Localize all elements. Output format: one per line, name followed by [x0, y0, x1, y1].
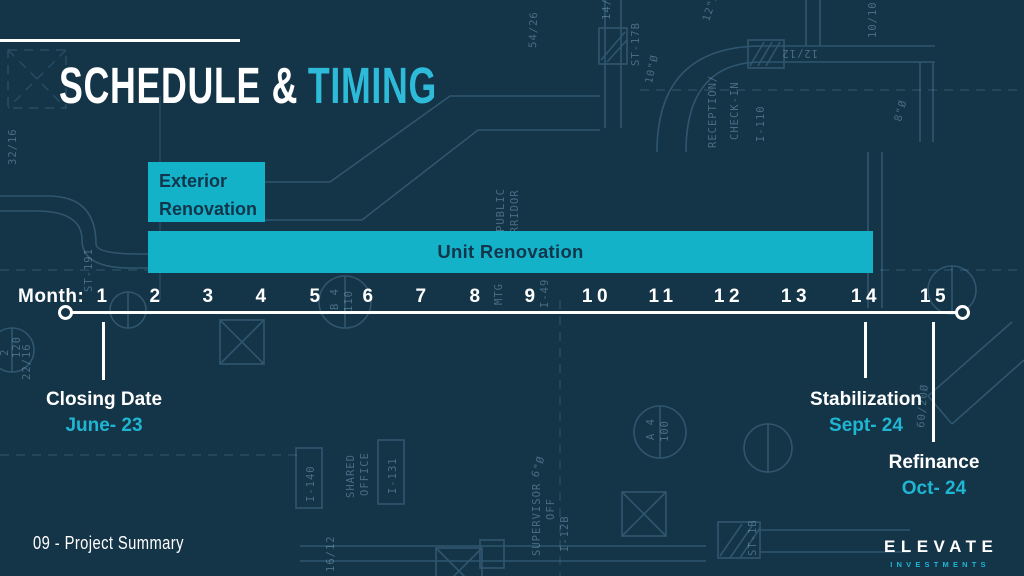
blueprint-label: 110: [343, 290, 355, 312]
month-label-13: 13: [781, 286, 811, 308]
blueprint-label: ST-17B: [630, 22, 642, 66]
blueprint-label: I-131: [387, 457, 399, 494]
gantt-bar-unit-renovation: Unit Renovation: [148, 231, 873, 273]
gantt-bar-exterior-renovation: Exterior Renovation: [148, 162, 265, 222]
blueprint-label: B 4: [329, 288, 341, 310]
blueprint-label: 8"Ø: [892, 98, 909, 122]
company-logo: ELEVATE INVESTMENTS: [884, 537, 996, 569]
milestone-date: June- 23: [46, 415, 162, 437]
page-footer: 09 - Project Summary: [33, 533, 217, 554]
month-label-10: 10: [582, 286, 612, 308]
milestone-tick-stabilization: [864, 322, 867, 378]
blueprint-label: I-140: [305, 465, 317, 502]
milestone-tick-refinance: [932, 322, 935, 442]
month-label-8: 8: [469, 286, 484, 308]
milestone-date: Sept- 24: [810, 415, 922, 437]
blueprint-label: SHARED: [345, 454, 357, 498]
blueprint-label: I-49: [539, 279, 551, 308]
milestone-closing-date: Closing Date June- 23: [46, 389, 162, 437]
logo-tagline: INVESTMENTS: [884, 560, 996, 569]
footer-text: 09 - Project Summary: [33, 533, 184, 554]
blueprint-label: 10"Ø: [643, 53, 661, 84]
blueprint-label: 12"Ø: [700, 0, 720, 23]
blueprint-label: CHECK-IN: [729, 81, 741, 140]
month-label-11: 11: [648, 286, 677, 308]
title-text-accent: TIMING: [308, 57, 437, 114]
month-label-1: 1: [96, 286, 111, 308]
month-label-4: 4: [255, 286, 270, 308]
blueprint-label: MTG: [493, 283, 505, 305]
month-label-14: 14: [851, 286, 881, 308]
month-label-3: 3: [202, 286, 217, 308]
blueprint-label: ST-191: [83, 248, 95, 292]
timeline-end-dot: [955, 305, 970, 320]
blueprint-label: 120: [11, 336, 23, 358]
logo-name: ELEVATE: [884, 537, 996, 557]
month-label-5: 5: [309, 286, 324, 308]
timeline-axis-label: Month:: [18, 286, 84, 308]
blueprint-label: 32/16: [7, 128, 19, 165]
month-label-2: 2: [149, 286, 164, 308]
page-title: SCHEDULE &TIMING: [59, 60, 437, 111]
milestone-date: Oct- 24: [889, 478, 980, 500]
milestone-label: Refinance: [889, 452, 980, 474]
blueprint-label: RECEPTION/: [707, 75, 719, 148]
month-label-12: 12: [714, 286, 744, 308]
month-label-6: 6: [362, 286, 377, 308]
blueprint-label: 14/1: [601, 0, 613, 20]
milestone-label: Closing Date: [46, 389, 162, 411]
title-accent-line: [0, 39, 240, 42]
blueprint-label: I-12B: [559, 515, 571, 552]
timeline-start-dot: [58, 305, 73, 320]
blueprint-label: SUPERVISOR: [531, 483, 543, 556]
blueprint-label: 10/10: [867, 1, 879, 38]
gantt-bar-label: Unit Renovation: [437, 241, 583, 263]
blueprint-label: OFFICE: [359, 452, 371, 496]
milestone-stabilization: Stabilization Sept- 24: [810, 389, 922, 437]
blueprint-label: 54/26: [527, 11, 540, 48]
milestone-label: Stabilization: [810, 389, 922, 411]
month-label-15: 15: [920, 286, 950, 308]
gantt-bar-label: Exterior Renovation: [159, 171, 257, 219]
blueprint-label: ST-1B: [747, 519, 759, 556]
milestone-tick-closing-date: [102, 322, 105, 380]
blueprint-label: 6"Ø: [529, 454, 547, 479]
milestone-refinance: Refinance Oct- 24: [889, 452, 980, 500]
blueprint-label: I-110: [755, 105, 767, 142]
blueprint-label: OFF: [545, 498, 557, 520]
month-label-9: 9: [524, 286, 539, 308]
timeline-line: [66, 311, 963, 314]
blueprint-label: 16/12: [325, 535, 337, 572]
blueprint-label: 100: [659, 420, 671, 442]
blueprint-label: PUBLIC: [495, 188, 507, 232]
month-label-7: 7: [415, 286, 430, 308]
slide: 54/26 ST-17B 10"Ø 14/1 12"Ø 12/12 10/10 …: [0, 0, 1024, 576]
blueprint-label: A 4: [645, 418, 657, 440]
title-text-white: SCHEDULE &: [59, 57, 298, 114]
blueprint-label: 12/12: [781, 47, 818, 59]
blueprint-label: 2: [0, 349, 11, 356]
